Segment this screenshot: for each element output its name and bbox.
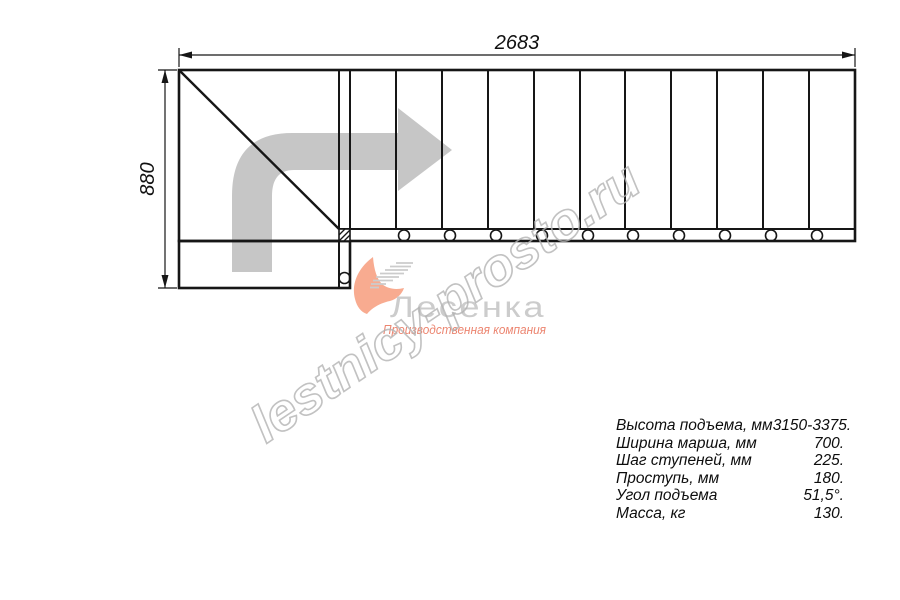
spec-value: 130. [814, 505, 844, 523]
spec-row-mass: Масса, кг 130. [616, 505, 844, 523]
watermark-text: lestnicy-prosto.ru [240, 151, 650, 454]
spec-label: Масса, кг [616, 505, 685, 523]
spec-value: 3150-3375. [773, 417, 851, 435]
dim-arrow-up-icon [162, 70, 169, 83]
spec-label: Шаг ступеней, мм [616, 452, 752, 470]
staircase-drawing-page: 2683 880 Лесенка Производстве [0, 0, 900, 600]
dimension-height [158, 70, 177, 288]
dimension-height-label: 880 [137, 162, 159, 195]
spec-label: Высота подъема, мм [616, 417, 773, 435]
spec-row-angle: Угол подъема 51,5°. [616, 487, 844, 505]
spec-row-width: Ширина марша, мм 700. [616, 435, 844, 453]
dim-arrow-left-icon [179, 52, 192, 59]
spec-value: 225. [814, 452, 844, 470]
dimension-width-label: 2683 [494, 32, 540, 54]
dim-arrow-right-icon [842, 52, 855, 59]
spec-label: Проступь, мм [616, 470, 719, 488]
hatched-connector [339, 229, 350, 241]
spec-row-tread: Проступь, мм 180. [616, 470, 844, 488]
spec-row-step: Шаг ступеней, мм 225. [616, 452, 844, 470]
spec-value: 180. [814, 470, 844, 488]
spec-row-height: Высота подъема, мм 3150-3375. [616, 417, 844, 435]
direction-arrow-icon [232, 108, 452, 272]
spec-table: Высота подъема, мм 3150-3375. Ширина мар… [616, 417, 844, 523]
dim-arrow-down-icon [162, 275, 169, 288]
spec-label: Угол подъема [616, 487, 717, 505]
spec-value: 51,5°. [803, 487, 844, 505]
spec-label: Ширина марша, мм [616, 435, 757, 453]
spec-value: 700. [814, 435, 844, 453]
